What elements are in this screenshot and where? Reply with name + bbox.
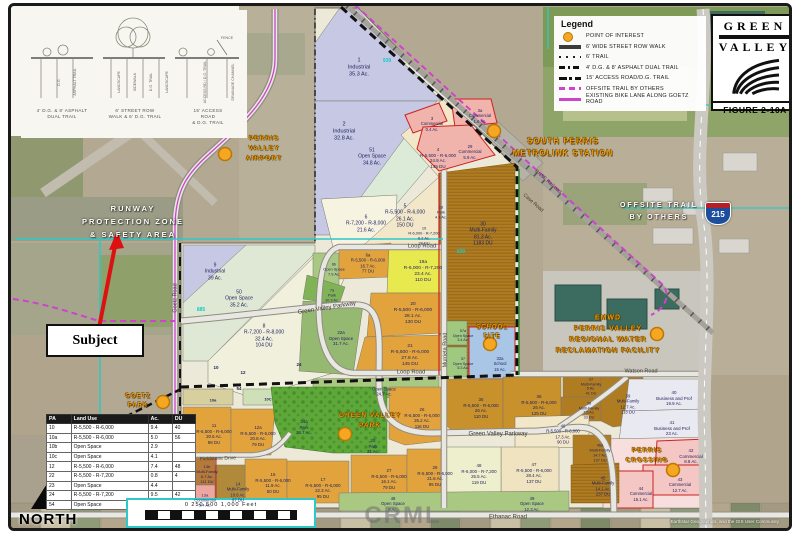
offsite-dash-icon [559,87,581,90]
legend-item-label: POINT OF INTEREST [586,33,644,39]
table-cell: 23 [47,481,72,491]
legend: Legend POINT OF INTEREST 6' WIDE STREET … [554,16,706,111]
table-cell: Open Space [71,481,148,491]
green-valley-logo: GREEN VALLEY FIGURE 2-10A [711,14,792,111]
logo-line2: VALLEY [713,40,792,55]
legend-title: Legend [561,19,701,29]
table-header: Land Use [71,415,148,424]
table-row: 12R-5,500 - R-6,0007.448 [47,462,196,472]
section-label: ASPHALT TRAIL [73,68,77,95]
dual-trail-dash-icon [559,66,581,69]
section-caption: 15' ACCESS ROAD & D.G. TRAIL [189,108,228,126]
table-cell: 4.1 [148,452,172,462]
table-cell: 0.8 [148,471,172,481]
interstate-215-shield-icon: 215 [705,202,731,225]
parcel-table: PALand UseAc.DU 10R-5,500 - R-6,0009.440… [46,414,196,510]
section-label: LANDSCAPE [117,71,121,93]
table-row: 10bOpen Space2.9 [47,443,196,453]
leaf-icon [720,55,790,95]
table-cell: 9.4 [148,424,172,434]
table-row: 23Open Space4.4 [47,481,196,491]
legend-item-label: 4' D.G. & 8' ASPHALT DUAL TRAIL [586,65,679,71]
table-cell: R-5,500 - R-6,000 [71,424,148,434]
subject-callout: Subject [46,324,144,357]
table-cell: R-5,500 - R-7,200 [71,471,148,481]
table-cell: 7.4 [148,462,172,472]
section-label: LANDSCAPE [165,71,169,93]
screenshot-stage: D.G. ASPHALT TRAIL LANDSCAPE SIDEWALK D.… [0,0,800,539]
trail-cross-sections: D.G. ASPHALT TRAIL LANDSCAPE SIDEWALK D.… [21,10,247,138]
fence-label: FENCE [221,36,233,40]
table-cell: 24 [47,491,72,501]
table-cell: R-5,500 - R-6,000 [71,462,148,472]
access-road-dash-icon [559,77,581,80]
table-cell: 54 [47,500,72,510]
table-cell: 10b [47,443,72,453]
interstate-number: 215 [706,208,730,221]
map-attribution: Earthstar Geographics, and the GIS User … [479,519,779,524]
table-row: 10aR-5,500 - R-6,0005.056 [47,433,196,443]
scale-text: 0 250 500 1,000 Feet [128,502,314,508]
figure-label: FIGURE 2-10A [713,101,792,115]
table-cell: 4 [172,471,195,481]
walk-line-icon [559,45,581,49]
bike-lane-line-icon [559,98,581,101]
scale-ruler-icon [145,510,297,520]
table-cell: 12 [47,462,72,472]
map-frame: D.G. ASPHALT TRAIL LANDSCAPE SIDEWALK D.… [8,3,792,531]
poi-circle-icon [559,32,581,40]
table-row: 22R-5,500 - R-7,2000.84 [47,471,196,481]
table-row: 10cOpen Space4.1 [47,452,196,462]
section-caption: 4' D.G. & 8' ASPHALT DUAL TRAIL [37,108,88,120]
table-cell: 10 [47,424,72,434]
table-cell: 48 [172,462,195,472]
table-cell: 4.4 [148,481,172,491]
table-cell: 5.0 [148,433,172,443]
table-cell: 10c [47,452,72,462]
section-label: DRAINAGE CHANNEL [231,64,235,101]
table-cell: Open Space [71,443,148,453]
trail-dots-icon [559,56,581,58]
table-header: Ac. [148,415,172,424]
section-label: D.G. TRAIL [149,73,153,92]
section-caption: 6' STREET ROW WALK & 6' D.G. TRAIL [109,108,162,120]
legend-item-label: 6' WIDE STREET ROW WALK [586,44,666,50]
logo-divider [719,35,791,39]
section-label: SIDEWALK [133,73,137,91]
legend-item-label: 15' ACCESS ROAD/D.G. TRAIL [586,75,669,81]
table-cell: 2.9 [148,443,172,453]
logo-line1: GREEN [713,19,792,34]
table-cell: Open Space [71,452,148,462]
north-label: NORTH [19,511,77,528]
section-label: D.G. [57,78,61,85]
legend-item-label: EXISTING BIKE LANE ALONG GOETZ ROAD [586,93,701,105]
legend-item-label: 6' TRAIL [586,54,609,60]
table-cell: 10a [47,433,72,443]
table-cell [172,443,195,453]
table-cell: 40 [172,424,195,434]
table-cell: 56 [172,433,195,443]
legend-item-label: OFFSITE TRAIL BY OTHERS [586,86,664,92]
table-cell [172,481,195,491]
table-cell: R-5,500 - R-6,000 [71,433,148,443]
subject-label: Subject [72,333,117,349]
section-label: ACCESS RD / D.G. TRAIL [203,61,207,103]
table-header: PA [47,415,72,424]
table-cell [172,452,195,462]
table-cell: 22 [47,471,72,481]
table-header: DU [172,415,195,424]
table-row: 10R-5,500 - R-6,0009.440 [47,424,196,434]
table-header-row: PALand UseAc.DU [47,415,196,424]
scale-bar: 0 250 500 1,000 Feet [126,498,316,528]
